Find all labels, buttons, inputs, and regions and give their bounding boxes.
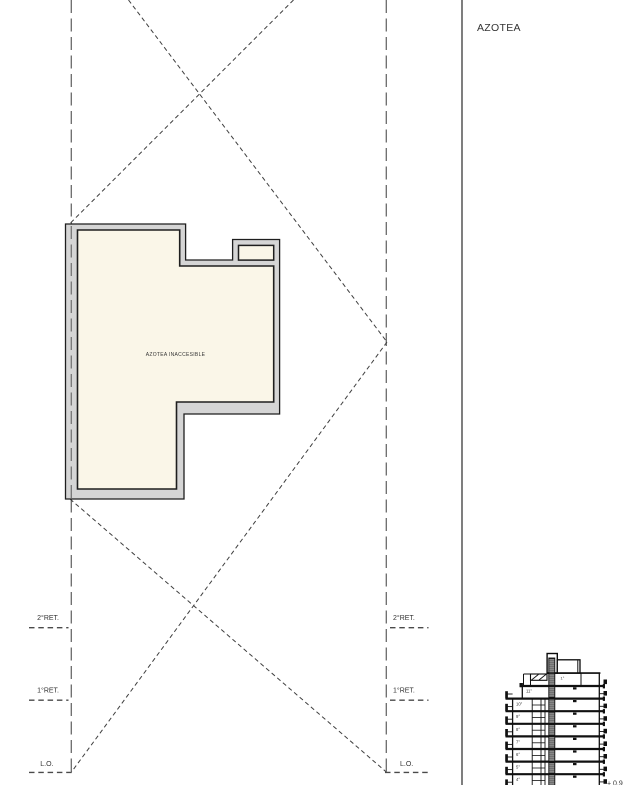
svg-text:AZOTEA INACCESIBLE: AZOTEA INACCESIBLE [146,352,206,358]
svg-text:1°RET.: 1°RET. [37,687,59,695]
svg-text:10°: 10° [516,702,523,707]
svg-text:AZOTEA: AZOTEA [477,22,521,34]
svg-text:1°RET.: 1°RET. [393,687,415,695]
svg-text:L.O.: L.O. [400,761,413,768]
svg-text:11°: 11° [526,689,532,694]
svg-text:6°: 6° [516,752,520,757]
svg-text:4°: 4° [516,777,520,782]
svg-text:9°: 9° [516,714,520,719]
svg-text:2°RET.: 2°RET. [37,614,59,622]
svg-text:1°: 1° [561,676,565,681]
svg-text:5°: 5° [516,765,520,770]
svg-text:L.O.: L.O. [40,761,53,768]
svg-text:+ 0.9: + 0.9 [607,781,623,785]
svg-text:8°: 8° [516,727,520,732]
svg-text:2°RET.: 2°RET. [393,614,415,622]
svg-text:7°: 7° [516,739,520,744]
